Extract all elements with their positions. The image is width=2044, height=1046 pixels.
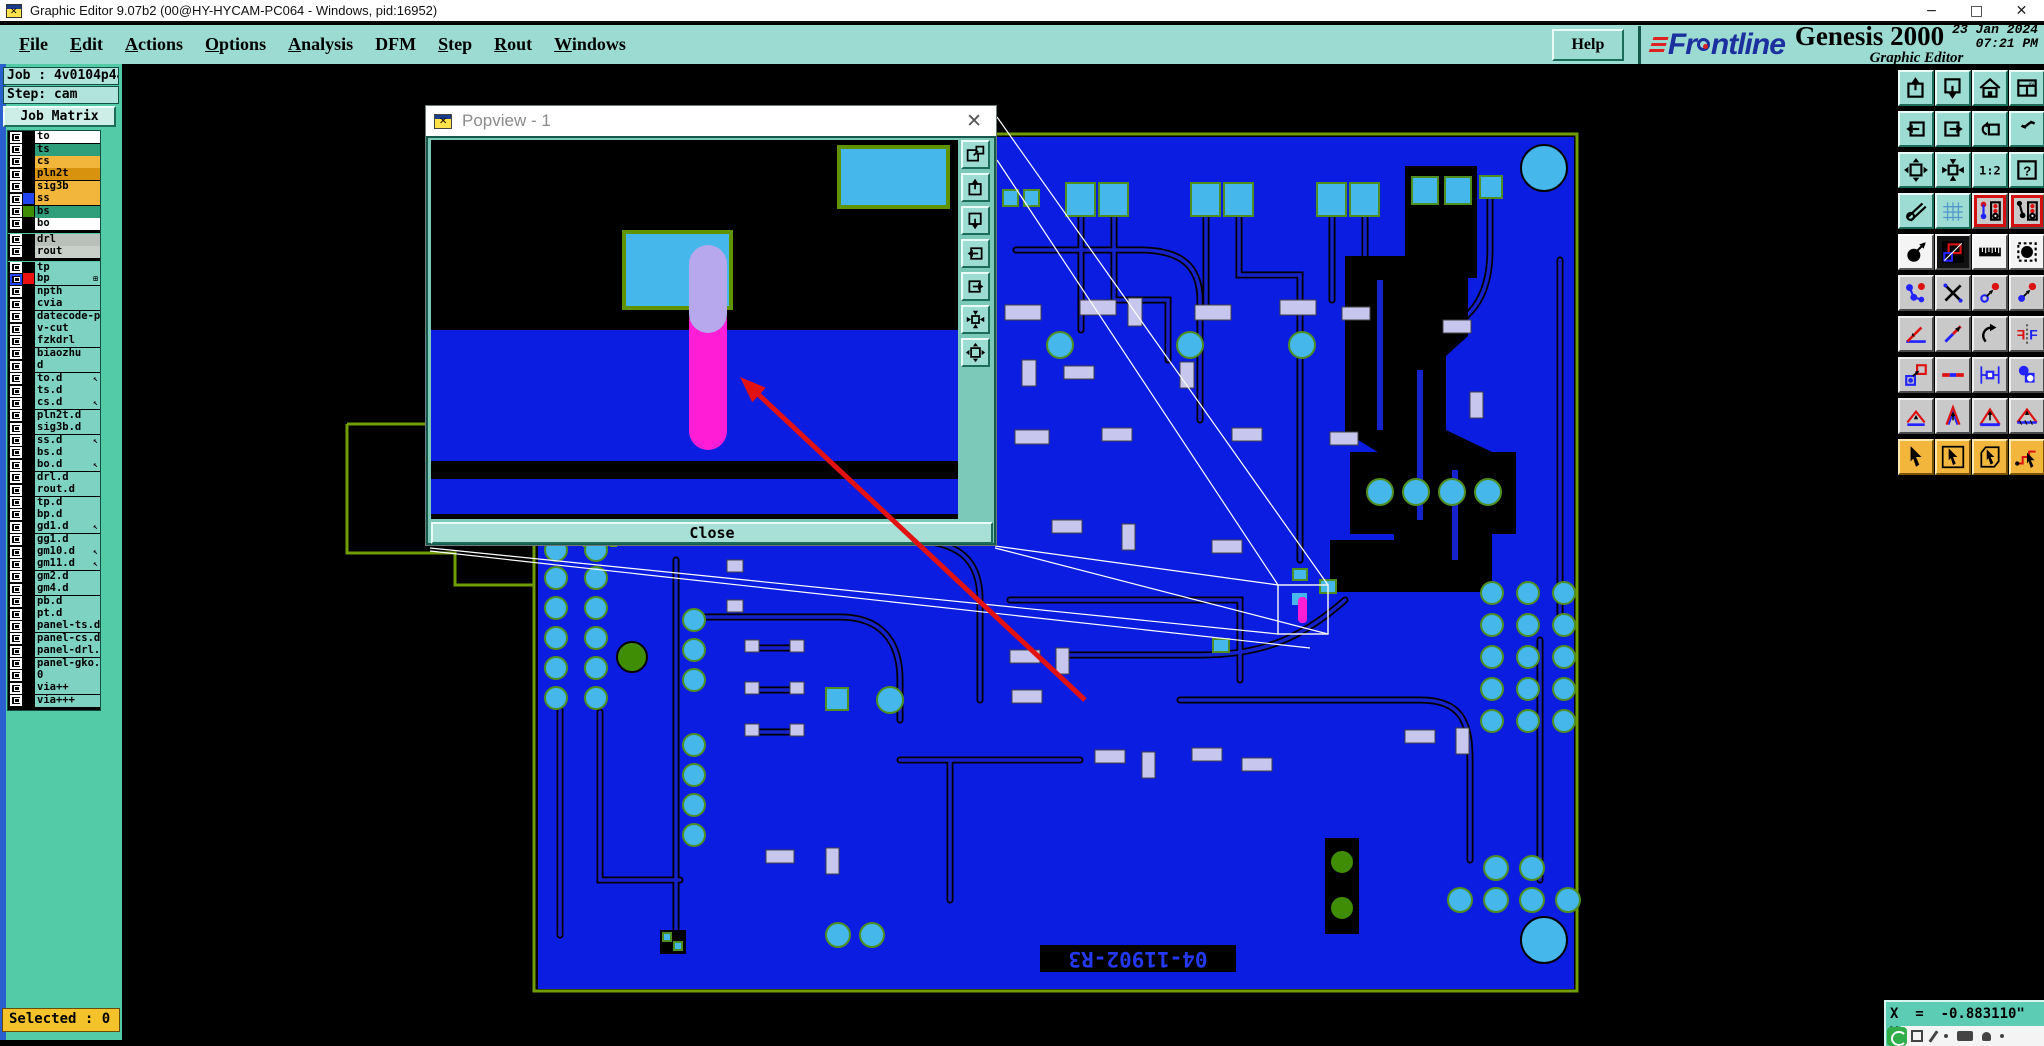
layer-checkbox-v-cut[interactable] xyxy=(10,324,22,335)
zoom-expand-button[interactable] xyxy=(961,338,990,367)
layer-checkbox-to.d[interactable] xyxy=(10,373,22,384)
menu-divider xyxy=(1638,26,1641,64)
layer-row-panel-drl.d[interactable]: panel-drl.d xyxy=(8,645,100,657)
layer-swatch-ss[interactable] xyxy=(23,193,35,205)
layer-label-bp[interactable]: bp⊞ xyxy=(35,273,100,285)
layer-label-npth[interactable]: npth xyxy=(35,286,100,298)
clear-highlight-button[interactable] xyxy=(1935,275,1971,311)
popview-title-bar[interactable]: Popview - 1 ✕ xyxy=(426,106,996,136)
layer-checkbox-d[interactable] xyxy=(10,361,22,372)
layer-checkbox-gm2.d[interactable] xyxy=(10,571,22,582)
layer-swatch-v-cut[interactable] xyxy=(23,323,35,335)
pan-up-button[interactable] xyxy=(961,173,990,202)
pcb-canvas[interactable]: 04-11902-R3 xyxy=(122,64,1896,1046)
layer-swatch-to[interactable] xyxy=(23,131,35,143)
layer-checkbox-ss.d[interactable] xyxy=(10,435,22,446)
layer-label-gd1.d[interactable]: gd1.d↖ xyxy=(35,521,100,533)
layer-row-via+++[interactable]: via+++ xyxy=(8,695,100,707)
layer-row-pt.d[interactable]: pt.d xyxy=(8,608,100,620)
select-single-button[interactable] xyxy=(1898,439,1934,475)
layer-label-gm4.d[interactable]: gm4.d xyxy=(35,583,100,595)
job-matrix-button[interactable]: Job Matrix ... xyxy=(3,106,116,127)
help-button[interactable]: Help xyxy=(1552,29,1624,61)
layer-sidebar: Job : 4v0104p4a0 Step: cam Job Matrix ..… xyxy=(0,64,122,1040)
sidebar-edge xyxy=(0,64,6,1040)
layer-checkbox-gg1.d[interactable] xyxy=(10,534,22,545)
layer-swatch-pln2t[interactable] xyxy=(23,168,35,180)
layer-label-datecode-pb[interactable]: datecode-pb xyxy=(35,311,100,323)
close-button[interactable]: ✕ xyxy=(1999,0,2044,21)
screen-down-button[interactable] xyxy=(1935,70,1971,106)
layer-row-to[interactable]: to xyxy=(8,131,100,143)
center-view-button[interactable] xyxy=(1935,152,1971,188)
layer-label-rout[interactable]: rout xyxy=(35,246,100,258)
layer-checkbox-ts.d[interactable] xyxy=(10,386,22,397)
paste-up-button[interactable] xyxy=(1898,70,1934,106)
home-view-button[interactable] xyxy=(1972,70,2008,106)
slant-line-button[interactable] xyxy=(1935,316,1971,352)
layer-checkbox-panel-gko.d[interactable] xyxy=(10,658,22,669)
layer-swatch-tp[interactable] xyxy=(23,262,35,274)
menu-analysis[interactable]: Analysis xyxy=(277,34,364,55)
previous-view-button[interactable] xyxy=(1972,111,2008,147)
layer-row-tp[interactable]: tp xyxy=(8,261,100,273)
layer-swatch-sig3b[interactable] xyxy=(23,181,35,193)
layer-checkbox-sig3b[interactable] xyxy=(10,181,22,192)
menu-windows[interactable]: Windows xyxy=(543,34,637,55)
rotate-button[interactable] xyxy=(1972,316,2008,352)
ime-pen-icon[interactable] xyxy=(1929,1030,1939,1042)
layer-row-npth[interactable]: npth xyxy=(8,286,100,298)
right-toolbar: xy1:2?FF xyxy=(1896,64,2044,1046)
layer-swatch-fzkdrl[interactable] xyxy=(23,335,35,347)
grid-button[interactable] xyxy=(1935,193,1971,229)
netlist-ref-button[interactable] xyxy=(2009,193,2044,229)
layer-row-ss.d[interactable]: ss.d↖ xyxy=(8,434,100,446)
layer-swatch-rout.d[interactable] xyxy=(23,484,35,496)
pan-left-button[interactable] xyxy=(961,239,990,268)
layer-label-tp[interactable]: tp xyxy=(35,262,100,274)
layer-swatch-gd1.d[interactable] xyxy=(23,521,35,533)
layer-label-ts.d[interactable]: ts.d xyxy=(35,385,100,397)
job-label: Job : 4v0104p4a0 xyxy=(3,67,119,85)
layer-swatch-bs.d[interactable] xyxy=(23,447,35,459)
layer-swatch-to.d[interactable] xyxy=(23,373,35,385)
layer-checkbox-biaozhu[interactable] xyxy=(10,348,22,359)
layer-row-d[interactable]: d xyxy=(8,360,100,372)
layer-swatch-sig3b.d[interactable] xyxy=(23,422,35,434)
layer-row-pb.d[interactable]: pb.d xyxy=(8,595,100,607)
layer-checkbox-panel-drl.d[interactable] xyxy=(10,646,22,657)
menu-step[interactable]: Step xyxy=(427,34,483,55)
layer-label-d[interactable]: d xyxy=(35,360,100,372)
swap-pad-button[interactable] xyxy=(1898,357,1934,393)
layer-checkbox-panel-ts.d[interactable] xyxy=(10,621,22,632)
context-help-button[interactable]: ? xyxy=(2009,152,2044,188)
layer-label-gm10.d[interactable]: gm10.d↖ xyxy=(35,546,100,558)
layer-swatch-pt.d[interactable] xyxy=(23,608,35,620)
menu-edit[interactable]: Edit xyxy=(59,34,114,55)
layer-swatch-bp[interactable] xyxy=(23,273,35,285)
layer-checkbox-bs.d[interactable] xyxy=(10,447,22,458)
ruler-button[interactable] xyxy=(1972,234,2008,270)
select-poly-button[interactable] xyxy=(1972,439,2008,475)
layer-row-panel-gko.d[interactable]: panel-gko.d xyxy=(8,657,100,669)
layer-swatch-via+++[interactable] xyxy=(23,695,35,707)
datetime: 23 Jan 202407:21 PM xyxy=(1952,23,2038,51)
move-pad-button[interactable] xyxy=(1898,234,1934,270)
selected-count: Selected : 0 xyxy=(2,1008,120,1032)
layer-row-ts[interactable]: ts xyxy=(8,143,100,155)
popview-dialog[interactable]: Popview - 1 ✕ Close xyxy=(425,105,997,546)
product-name: Genesis 2000 xyxy=(1795,23,1944,49)
layer-swatch-d[interactable] xyxy=(23,360,35,372)
layer-checkbox-panel-cs.d[interactable] xyxy=(10,633,22,644)
layer-checkbox-ss[interactable] xyxy=(10,194,22,205)
os-taskbar-fragment xyxy=(1901,1026,2044,1046)
layer-row-0[interactable]: 0 xyxy=(8,670,100,682)
layer-swatch-rout[interactable] xyxy=(23,246,35,258)
layer-label-bs.d[interactable]: bs.d xyxy=(35,447,100,459)
pan-down-button[interactable] xyxy=(961,206,990,235)
layer-row-sig3b[interactable]: sig3b xyxy=(8,181,100,193)
layer-swatch-bp.d[interactable] xyxy=(23,509,35,521)
layer-checkbox-fzkdrl[interactable] xyxy=(10,336,22,347)
measure-button[interactable] xyxy=(1972,357,2008,393)
layer-swatch-tp.d[interactable] xyxy=(23,497,35,509)
layer-row-bs[interactable]: bs xyxy=(8,205,100,217)
layer-row-panel-cs.d[interactable]: panel-cs.d xyxy=(8,633,100,645)
layer-checkbox-gm11.d[interactable] xyxy=(10,559,22,570)
setup-tools-button[interactable] xyxy=(1898,193,1934,229)
profile-button[interactable] xyxy=(2009,111,2044,147)
window-title: Graphic Editor 9.07b2 (00@HY-HYCAM-PC064… xyxy=(30,3,437,18)
layer-checkbox-drl[interactable] xyxy=(10,234,22,245)
layer-row-bs.d[interactable]: bs.d xyxy=(8,447,100,459)
layer-label-ts[interactable]: ts xyxy=(35,144,100,156)
layer-swatch-npth[interactable] xyxy=(23,286,35,298)
layer-row-cs.d[interactable]: cs.d↖ xyxy=(8,397,100,409)
layer-row-rout.d[interactable]: rout.d xyxy=(8,484,100,496)
angle-button[interactable] xyxy=(1898,316,1934,352)
layer-row-biaozhu[interactable]: biaozhu xyxy=(8,348,100,360)
ime-app-icon[interactable] xyxy=(1887,1027,1907,1046)
popview-body: Close xyxy=(426,136,996,545)
layer-label-ss[interactable]: ss xyxy=(35,193,100,205)
layer-label-panel-ts.d[interactable]: panel-ts.d xyxy=(35,620,100,632)
layer-row-to.d[interactable]: to.d↖ xyxy=(8,372,100,384)
layer-swatch-panel-gko.d[interactable] xyxy=(23,658,35,670)
product-brand: Genesis 2000 23 Jan 202407:21 PM Graphic… xyxy=(1795,23,2038,66)
menu-actions[interactable]: Actions xyxy=(114,34,194,55)
net-chain-button[interactable] xyxy=(1898,275,1934,311)
menu-bar: FileEditActionsOptionsAnalysisDFMStepRou… xyxy=(0,25,2044,64)
menu-dfm[interactable]: DFM xyxy=(364,34,427,55)
fit-margins-button[interactable] xyxy=(1898,152,1934,188)
layer-swatch-drl[interactable] xyxy=(23,234,35,246)
window-xy-button[interactable]: xy xyxy=(2009,70,2044,106)
step-label: Step: cam xyxy=(3,86,119,104)
layer-swatch-drl.d[interactable] xyxy=(23,472,35,484)
layer-checkbox-pln2t.d[interactable] xyxy=(10,410,22,421)
layer-label-bp.d[interactable]: bp.d xyxy=(35,509,100,521)
layer-checkbox-gd1.d[interactable] xyxy=(10,522,22,533)
layer-swatch-bo[interactable] xyxy=(23,218,35,230)
layer-row-pln2t[interactable]: pln2t xyxy=(8,168,100,180)
svg-text:?: ? xyxy=(2023,163,2031,178)
layer-row-drl[interactable]: drl xyxy=(8,233,100,245)
popview-close-icon[interactable]: ✕ xyxy=(966,110,982,133)
layer-swatch-bo.d[interactable] xyxy=(23,459,35,471)
layer-checkbox-rout.d[interactable] xyxy=(10,485,22,496)
layer-row-rout[interactable]: rout xyxy=(8,246,100,258)
layer-swatch-bs[interactable] xyxy=(23,206,35,218)
menu-rout[interactable]: Rout xyxy=(483,34,543,55)
layer-swatch-datecode-pb[interactable] xyxy=(23,311,35,323)
layer-label-pln2t.d[interactable]: pln2t.d xyxy=(35,410,100,422)
graphic-editor-window: Graphic Editor 9.07b2 (00@HY-HYCAM-PC064… xyxy=(0,0,2044,1046)
maximize-button[interactable]: □ xyxy=(1954,0,1999,21)
layer-checkbox-pb.d[interactable] xyxy=(10,596,22,607)
layer-swatch-panel-drl.d[interactable] xyxy=(23,645,35,657)
layer-checkbox-pt.d[interactable] xyxy=(10,609,22,620)
layer-label-drl.d[interactable]: drl.d xyxy=(35,472,100,484)
select-frame-button[interactable] xyxy=(1935,439,1971,475)
layer-label-sig3b.d[interactable]: sig3b.d xyxy=(35,422,100,434)
copy-to-open-button[interactable] xyxy=(1972,275,2008,311)
pop-highlight-lavender xyxy=(689,245,727,333)
layer-swatch-via++[interactable] xyxy=(23,682,35,694)
layer-row-bp.d[interactable]: bp.d xyxy=(8,509,100,521)
layer-label-cvia[interactable]: cvia xyxy=(35,298,100,310)
layer-swatch-cs[interactable] xyxy=(23,156,35,168)
layer-label-fzkdrl[interactable]: fzkdrl xyxy=(35,335,100,347)
layer-label-pt.d[interactable]: pt.d xyxy=(35,608,100,620)
layer-row-gd1.d[interactable]: gd1.d↖ xyxy=(8,521,100,533)
layer-checkbox-bp[interactable] xyxy=(10,274,22,285)
copy-to-filled-button[interactable] xyxy=(2009,275,2044,311)
layer-checkbox-datecode-pb[interactable] xyxy=(10,311,22,322)
layer-swatch-gm2.d[interactable] xyxy=(23,571,35,583)
layer-label-rout.d[interactable]: rout.d xyxy=(35,484,100,496)
layer-label-cs[interactable]: cs xyxy=(35,156,100,168)
select-net-button[interactable] xyxy=(2009,439,2044,475)
arc-mode-4-button[interactable] xyxy=(2009,398,2044,434)
layer-checkbox-bo.d[interactable] xyxy=(10,460,22,471)
taskbar-dot2-icon xyxy=(2000,1034,2004,1038)
layer-row-cs[interactable]: cs xyxy=(8,156,100,168)
layer-swatch-ss.d[interactable] xyxy=(23,435,35,447)
ime-lang-icon[interactable] xyxy=(1911,1030,1923,1042)
layer-checkbox-tp.d[interactable] xyxy=(10,497,22,508)
logo-target-icon xyxy=(1697,38,1710,51)
layer-row-v-cut[interactable]: v-cut xyxy=(8,323,100,335)
layer-row-fzkdrl[interactable]: fzkdrl xyxy=(8,335,100,347)
layer-row-drl.d[interactable]: drl.d xyxy=(8,472,100,484)
popview-canvas[interactable] xyxy=(431,140,958,519)
layer-swatch-pb.d[interactable] xyxy=(23,596,35,608)
layer-swatch-cvia[interactable] xyxy=(23,298,35,310)
layer-checkbox-to[interactable] xyxy=(10,132,22,143)
layer-label-bs[interactable]: bs xyxy=(35,206,100,218)
layer-label-cs.d[interactable]: cs.d↖ xyxy=(35,397,100,409)
layer-label-to.d[interactable]: to.d↖ xyxy=(35,373,100,385)
layer-label-ss.d[interactable]: ss.d↖ xyxy=(35,435,100,447)
layer-label-pb.d[interactable]: pb.d xyxy=(35,596,100,608)
layer-row-gg1.d[interactable]: gg1.d xyxy=(8,534,100,546)
layer-label-pln2t[interactable]: pln2t xyxy=(35,168,100,180)
layer-swatch-gm10.d[interactable] xyxy=(23,546,35,558)
layer-checkbox-cs.d[interactable] xyxy=(10,398,22,409)
layer-checkbox-rout[interactable] xyxy=(10,246,22,257)
layer-checkbox-ts[interactable] xyxy=(10,144,22,155)
layer-label-gm2.d[interactable]: gm2.d xyxy=(35,571,100,583)
layer-label-tp.d[interactable]: tp.d xyxy=(35,497,100,509)
mirror-button[interactable]: FF xyxy=(2009,316,2044,352)
svg-text:F: F xyxy=(2016,326,2025,342)
popview-close-button[interactable]: Close xyxy=(431,522,993,544)
layer-swatch-gm4.d[interactable] xyxy=(23,583,35,595)
layer-row-tp.d[interactable]: tp.d xyxy=(8,496,100,508)
zoom-in-button[interactable] xyxy=(1898,111,1934,147)
layer-row-datecode-pb[interactable]: datecode-pb xyxy=(8,310,100,322)
layer-row-bo.d[interactable]: bo.d↖ xyxy=(8,459,100,471)
layer-row-sig3b.d[interactable]: sig3b.d xyxy=(8,422,100,434)
popview-window-icon xyxy=(434,114,452,129)
layer-row-bp[interactable]: bp⊞ xyxy=(8,273,100,285)
layer-label-bo[interactable]: bo xyxy=(35,218,100,230)
layer-checkbox-via+++[interactable] xyxy=(10,695,22,706)
layer-checkbox-bp.d[interactable] xyxy=(10,509,22,520)
layer-checkbox-tp[interactable] xyxy=(10,262,22,273)
svg-text:1:2: 1:2 xyxy=(1979,163,2001,177)
layer-label-bo.d[interactable]: bo.d↖ xyxy=(35,459,100,471)
layer-label-sig3b[interactable]: sig3b xyxy=(35,181,100,193)
menu-file[interactable]: File xyxy=(8,34,59,55)
layer-label-biaozhu[interactable]: biaozhu xyxy=(35,348,100,360)
zoom-out-button[interactable] xyxy=(1935,111,1971,147)
menu-options[interactable]: Options xyxy=(194,34,277,55)
layer-label-panel-drl.d[interactable]: panel-drl.d xyxy=(35,645,100,657)
layer-swatch-cs.d[interactable] xyxy=(23,397,35,409)
layer-checkbox-gm4.d[interactable] xyxy=(10,584,22,595)
layer-checkbox-gm10.d[interactable] xyxy=(10,547,22,558)
svg-text:xy: xy xyxy=(2029,81,2035,87)
layer-swatch-ts[interactable] xyxy=(23,144,35,156)
user-icon[interactable] xyxy=(1982,1032,1991,1041)
frontline-logo: Frntline xyxy=(1651,28,1785,62)
layer-checkbox-sig3b.d[interactable] xyxy=(10,423,22,434)
layer-checkbox-bs[interactable] xyxy=(10,206,22,217)
layer-label-to[interactable]: to xyxy=(35,131,100,143)
pan-right-button[interactable] xyxy=(961,272,990,301)
layer-row-gm2.d[interactable]: gm2.d xyxy=(8,571,100,583)
layer-checkbox-via++[interactable] xyxy=(10,683,22,694)
layer-checkbox-drl.d[interactable] xyxy=(10,472,22,483)
app-icon xyxy=(6,4,22,18)
layer-swatch-0[interactable] xyxy=(23,670,35,682)
layer-checkbox-0[interactable] xyxy=(10,670,22,681)
layer-swatch-panel-cs.d[interactable] xyxy=(23,633,35,645)
layer-label-via++[interactable]: via++ xyxy=(35,682,100,694)
layer-row-bo[interactable]: bo xyxy=(8,218,100,230)
layer-swatch-gm11.d[interactable] xyxy=(23,558,35,570)
minimize-button[interactable]: − xyxy=(1909,0,1954,21)
select-pad-button[interactable] xyxy=(2009,234,2044,270)
touching-pads-button[interactable] xyxy=(2009,357,2044,393)
layer-label-gg1.d[interactable]: gg1.d xyxy=(35,534,100,546)
layer-label-panel-cs.d[interactable]: panel-cs.d xyxy=(35,633,100,645)
popview-window-button[interactable] xyxy=(961,140,990,169)
pop-pad-topright xyxy=(837,145,950,209)
layer-checkbox-bo[interactable] xyxy=(10,218,22,229)
popview-toolbar xyxy=(960,140,993,519)
svg-text:F: F xyxy=(2029,326,2038,342)
keyboard-icon[interactable] xyxy=(1957,1031,1973,1041)
layer-label-0[interactable]: 0 xyxy=(35,670,100,682)
layer-checkbox-npth[interactable] xyxy=(10,286,22,297)
layer-label-panel-gko.d[interactable]: panel-gko.d xyxy=(35,658,100,670)
layer-label-gm11.d[interactable]: gm11.d↖ xyxy=(35,558,100,570)
layer-swatch-gg1.d[interactable] xyxy=(23,534,35,546)
layer-checkbox-pln2t[interactable] xyxy=(10,169,22,180)
layer-swatch-ts.d[interactable] xyxy=(23,385,35,397)
layer-row-gm4.d[interactable]: gm4.d xyxy=(8,583,100,595)
segment-button[interactable] xyxy=(1935,357,1971,393)
arc-mode-3-button[interactable] xyxy=(1972,398,2008,434)
layer-swatch-panel-ts.d[interactable] xyxy=(23,620,35,632)
board-part-number: 04-11902-R3 xyxy=(1068,947,1207,971)
arc-mode-1-button[interactable] xyxy=(1898,398,1934,434)
layer-row-panel-ts.d[interactable]: panel-ts.d xyxy=(8,620,100,632)
scale-1-2-button[interactable]: 1:2 xyxy=(1972,152,2008,188)
layer-swatch-pln2t.d[interactable] xyxy=(23,410,35,422)
layer-label-via+++[interactable]: via+++ xyxy=(35,695,100,707)
popview-title: Popview - 1 xyxy=(462,111,551,131)
negative-view-button[interactable] xyxy=(1935,234,1971,270)
layer-row-ss[interactable]: ss xyxy=(8,193,100,205)
title-bar: Graphic Editor 9.07b2 (00@HY-HYCAM-PC064… xyxy=(0,0,2044,23)
layer-label-v-cut[interactable]: v-cut xyxy=(35,323,100,335)
zoom-center-button[interactable] xyxy=(961,305,990,334)
layer-swatch-biaozhu[interactable] xyxy=(23,348,35,360)
layer-checkbox-cvia[interactable] xyxy=(10,299,22,310)
layer-label-drl[interactable]: drl xyxy=(35,234,100,246)
logo-speedlines-icon xyxy=(1648,37,1668,53)
layer-row-pln2t.d[interactable]: pln2t.d xyxy=(8,410,100,422)
netlist-cur-button[interactable] xyxy=(1972,193,2008,229)
pop-plane-band2 xyxy=(431,479,958,514)
layer-list: totscspln2tsig3bssbsbodrlrouttpbp⊞npthcv… xyxy=(7,130,101,711)
layer-row-via++[interactable]: via++ xyxy=(8,682,100,694)
layer-row-cvia[interactable]: cvia xyxy=(8,298,100,310)
taskbar-dot-icon xyxy=(1944,1034,1948,1038)
layer-checkbox-cs[interactable] xyxy=(10,156,22,167)
arc-mode-2-button[interactable] xyxy=(1935,398,1971,434)
layer-row-gm10.d[interactable]: gm10.d↖ xyxy=(8,546,100,558)
layer-row-ts.d[interactable]: ts.d xyxy=(8,385,100,397)
layer-row-gm11.d[interactable]: gm11.d↖ xyxy=(8,558,100,570)
